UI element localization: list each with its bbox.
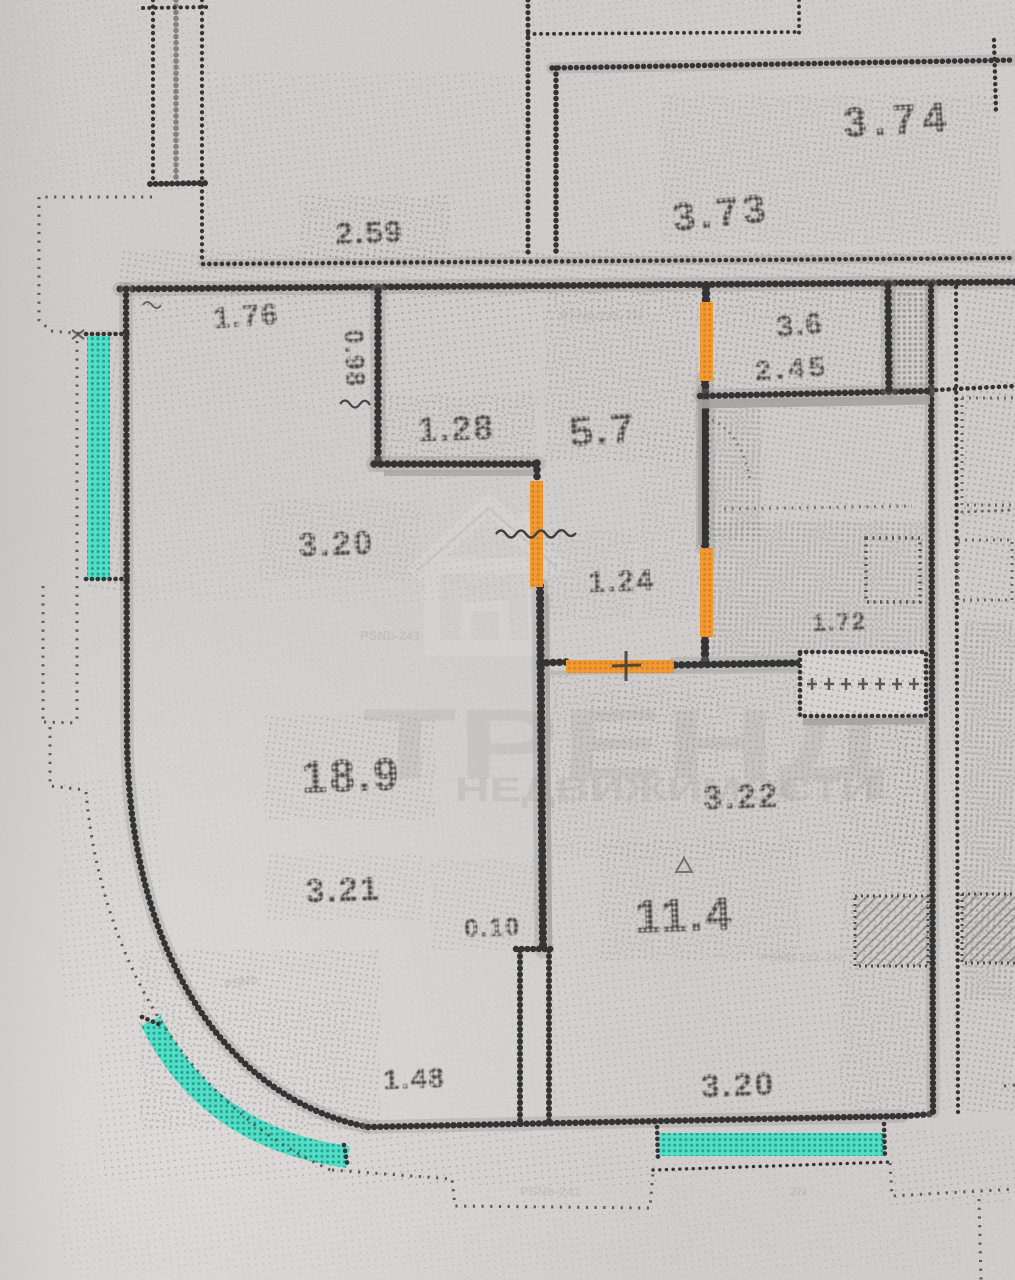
svg-text:1.76: 1.76	[212, 298, 281, 336]
svg-text:3.20: 3.20	[701, 1066, 776, 1105]
svg-text:2.45: 2.45	[754, 350, 830, 386]
svg-text:1.28: 1.28	[417, 409, 496, 450]
svg-text:18.9: 18.9	[301, 748, 402, 802]
svg-text:1.72: 1.72	[812, 608, 868, 637]
svg-text:3.21: 3.21	[305, 870, 382, 910]
svg-text:2.59: 2.59	[335, 214, 405, 251]
svg-text:3.22: 3.22	[703, 777, 780, 817]
svg-text:5.7: 5.7	[568, 404, 639, 456]
svg-text:1.48: 1.48	[383, 1062, 447, 1095]
svg-text:3.74: 3.74	[842, 93, 954, 146]
svg-text:0.98: 0.98	[339, 329, 371, 389]
svg-text:3.6: 3.6	[775, 307, 825, 344]
svg-text:11.4: 11.4	[634, 887, 735, 942]
svg-text:0.10: 0.10	[464, 913, 522, 943]
svg-text:1.24: 1.24	[588, 564, 656, 599]
svg-text:3.20: 3.20	[298, 524, 375, 564]
